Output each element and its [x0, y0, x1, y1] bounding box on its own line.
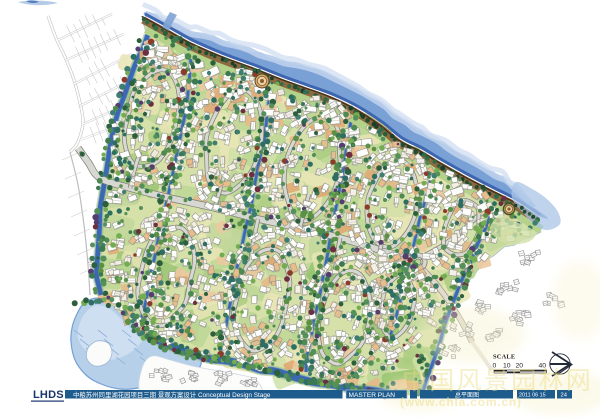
svg-text:MASTER PLAN: MASTER PLAN	[349, 392, 396, 399]
svg-text:SCALE: SCALE	[493, 354, 515, 361]
svg-text:中粮苏州同里湖花园项目三期 景观方案设计 Concept: 中粮苏州同里湖花园项目三期 景观方案设计 Conceptual Design S…	[73, 390, 271, 399]
svg-text:(www.chla.com.cn): (www.chla.com.cn)	[400, 395, 522, 409]
svg-text:LHDS: LHDS	[33, 389, 64, 401]
svg-text:中国风景园林网: 中国风景园林网	[402, 367, 593, 395]
